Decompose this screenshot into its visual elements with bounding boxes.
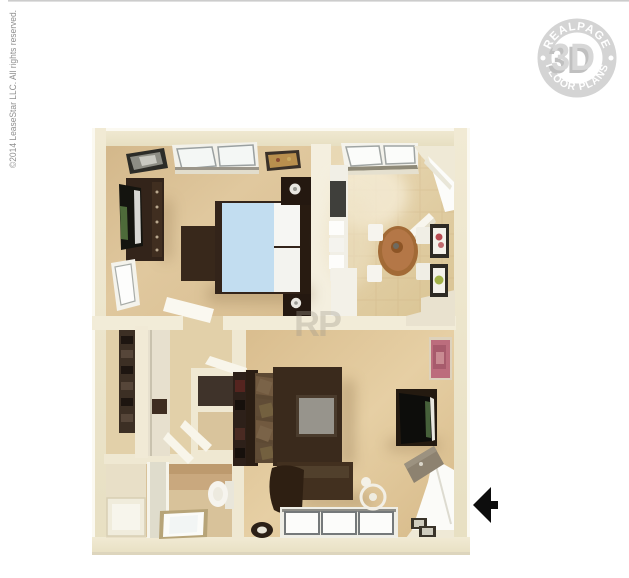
svg-text:RP: RP bbox=[294, 303, 341, 344]
svg-text:3D: 3D bbox=[551, 37, 595, 79]
svg-text:©2014 LeaseStar LLC. All right: ©2014 LeaseStar LLC. All rights reserved… bbox=[8, 10, 18, 168]
